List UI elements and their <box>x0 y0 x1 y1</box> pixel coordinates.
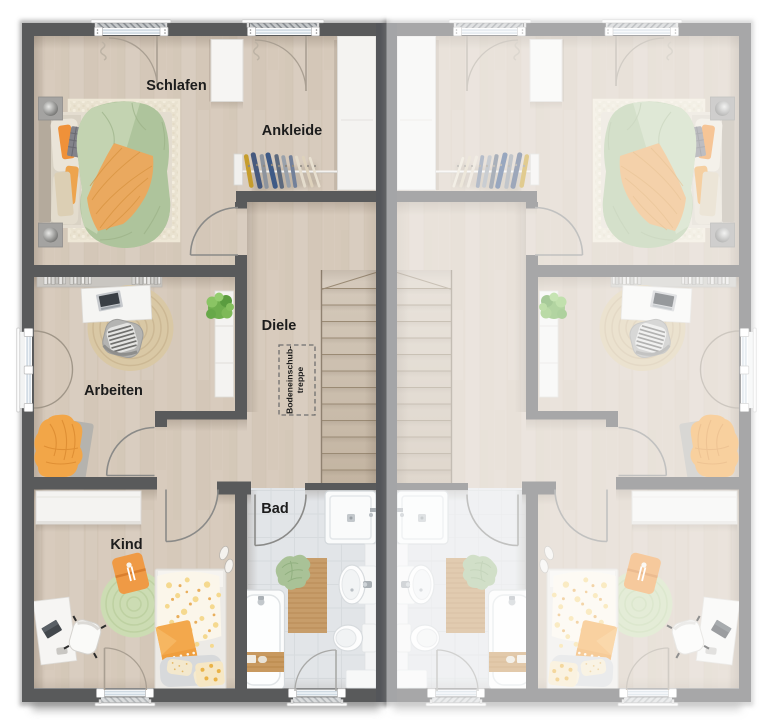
svg-text:Diele: Diele <box>262 318 297 334</box>
svg-text:treppe: treppe <box>295 367 305 394</box>
svg-text:Arbeiten: Arbeiten <box>84 383 143 399</box>
svg-text:Ankleide: Ankleide <box>262 123 322 139</box>
svg-text:Kind: Kind <box>110 537 142 553</box>
svg-text:Bodeneinschub-: Bodeneinschub- <box>285 346 295 414</box>
svg-text:Bad: Bad <box>261 501 288 517</box>
svg-text:Schlafen: Schlafen <box>146 78 206 94</box>
